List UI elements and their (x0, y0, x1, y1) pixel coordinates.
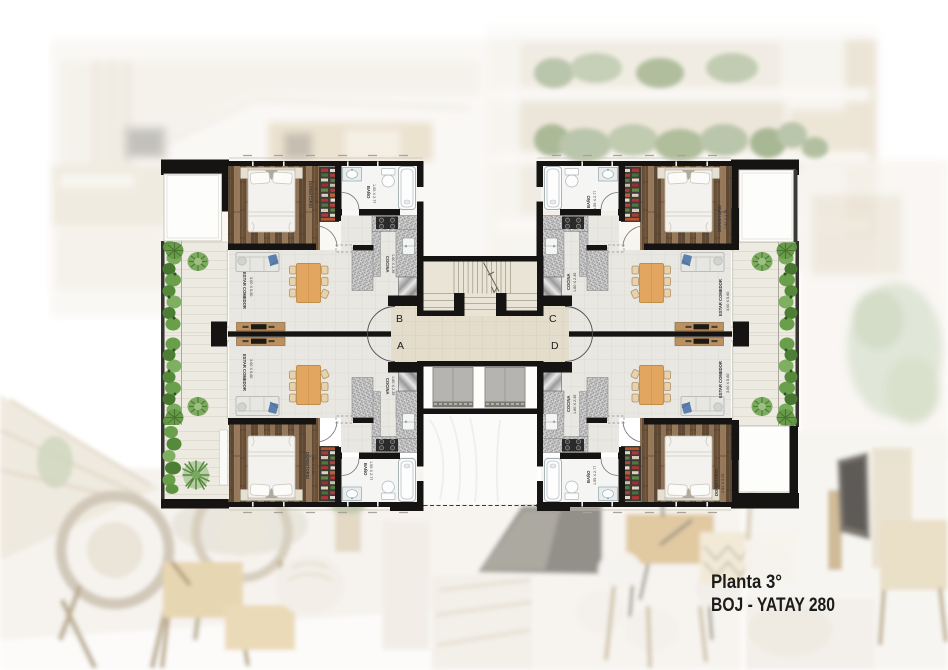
svg-text:BAÑO: BAÑO (363, 463, 368, 476)
svg-text:1.60 X 2.39: 1.60 X 2.39 (391, 254, 395, 273)
svg-text:BAÑO: BAÑO (586, 195, 591, 208)
svg-text:2.84 X 3.25: 2.84 X 3.25 (721, 474, 725, 493)
svg-text:1.60 X 2.39: 1.60 X 2.39 (391, 376, 395, 395)
svg-text:D: D (551, 340, 559, 352)
svg-text:3.00 X 5.60: 3.00 X 5.60 (249, 277, 253, 296)
svg-text:1.55 X 2.77: 1.55 X 2.77 (593, 191, 597, 210)
svg-text:BAÑO: BAÑO (366, 186, 371, 199)
svg-text:COCINA: COCINA (566, 273, 571, 290)
svg-text:B: B (396, 313, 403, 325)
svg-text:2.84 X 3.25: 2.84 X 3.25 (724, 210, 728, 229)
svg-text:1.55 X 2.77: 1.55 X 2.77 (369, 461, 373, 480)
svg-text:COCINA: COCINA (566, 395, 571, 412)
svg-text:3.00 X 5.60: 3.00 X 5.60 (726, 374, 730, 393)
svg-text:3.00 X 5.60: 3.00 X 5.60 (726, 292, 730, 311)
svg-text:ESTAR COMEDOR: ESTAR COMEDOR (242, 272, 247, 309)
svg-text:BAÑO: BAÑO (586, 470, 591, 483)
svg-text:C: C (549, 313, 557, 325)
svg-text:A: A (397, 340, 404, 352)
svg-text:1.55 X 2.77: 1.55 X 2.77 (372, 184, 376, 203)
svg-text:ESTAR COMEDOR: ESTAR COMEDOR (718, 279, 723, 316)
svg-text:COCINA: COCINA (385, 378, 390, 395)
svg-text:ESTAR COMEDOR: ESTAR COMEDOR (242, 354, 247, 391)
svg-text:1.60 X 2.39: 1.60 X 2.39 (573, 395, 577, 414)
svg-text:Planta 3°: Planta 3° (711, 572, 782, 593)
svg-text:1.55 X 2.77: 1.55 X 2.77 (593, 466, 597, 485)
svg-text:2.84 X 3.25: 2.84 X 3.25 (314, 184, 318, 203)
svg-text:1.60 X 2.39: 1.60 X 2.39 (573, 273, 577, 292)
svg-text:2.84 X 3.25: 2.84 X 3.25 (311, 455, 315, 474)
svg-text:DORMITORIO: DORMITORIO (305, 452, 310, 480)
svg-text:3.00 X 5.60: 3.00 X 5.60 (249, 359, 253, 378)
svg-text:DORMITORIO: DORMITORIO (308, 181, 313, 209)
svg-text:BOJ - YATAY 280: BOJ - YATAY 280 (711, 595, 835, 616)
svg-text:ESTAR COMEDOR: ESTAR COMEDOR (718, 361, 723, 398)
svg-text:DORMITORIO: DORMITORIO (714, 468, 719, 496)
svg-text:COCINA: COCINA (385, 256, 390, 273)
svg-text:DORMITORIO: DORMITORIO (717, 204, 722, 232)
